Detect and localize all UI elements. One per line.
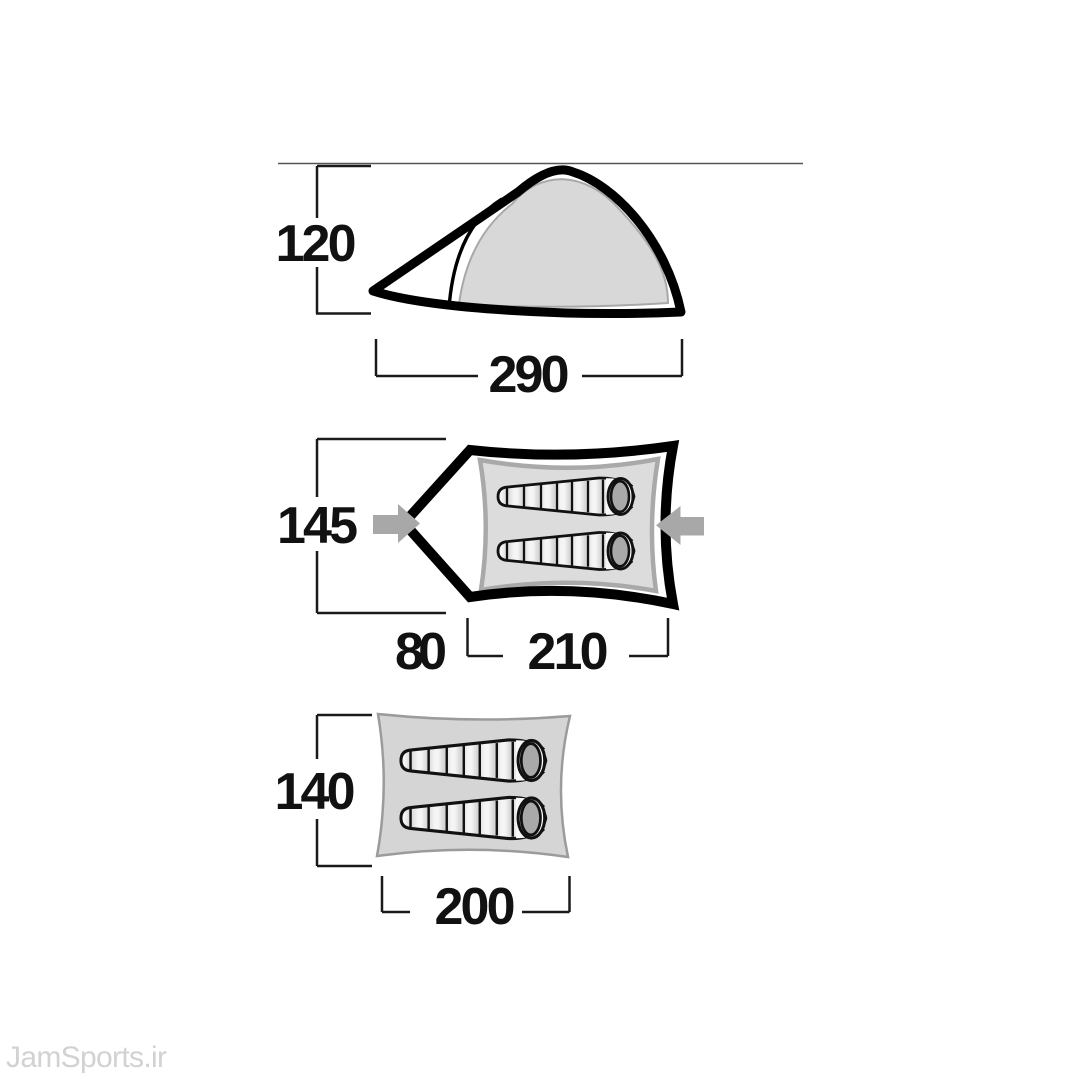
svg-text:200: 200 bbox=[435, 878, 516, 936]
svg-text:145: 145 bbox=[277, 497, 358, 555]
svg-text:120: 120 bbox=[276, 215, 357, 273]
svg-text:140: 140 bbox=[275, 763, 356, 821]
svg-text:290: 290 bbox=[489, 346, 570, 404]
svg-text:210: 210 bbox=[528, 623, 609, 681]
svg-text:JamSports.ir: JamSports.ir bbox=[6, 1041, 167, 1074]
svg-text:80: 80 bbox=[395, 623, 447, 681]
